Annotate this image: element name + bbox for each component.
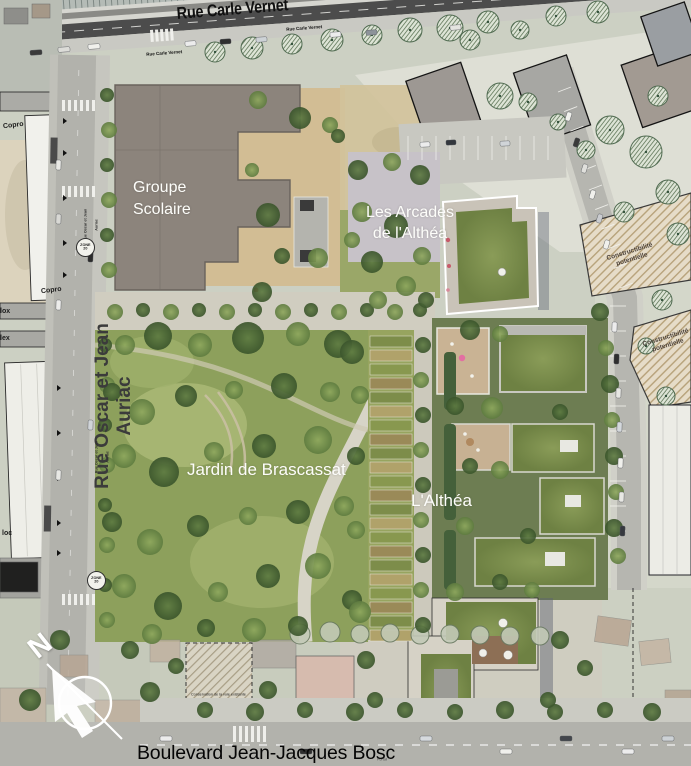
- boulevard-road: [0, 722, 691, 766]
- althea-buildings: [432, 318, 608, 600]
- les-arcades-building: [443, 196, 549, 314]
- site-plan: Rue Carle Vernet Rue Carle Vernet Rue Ca…: [0, 0, 691, 766]
- east-copro-building: [649, 405, 691, 575]
- zone-20-sign-south: ZONE 20: [87, 571, 106, 590]
- zone-20-sign-north: ZONE 20: [76, 238, 95, 257]
- site-plan-rendering: [0, 0, 691, 766]
